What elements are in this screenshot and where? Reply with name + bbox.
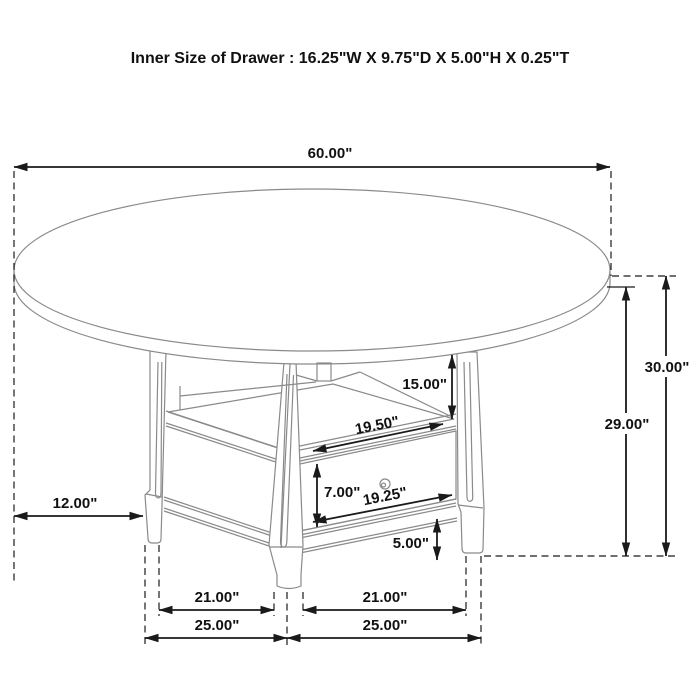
dim-apron-height-label: 5.00" — [393, 535, 429, 552]
dim-table-diameter: 60.00" — [14, 145, 610, 167]
dim-top-overhang-label: 12.00" — [53, 495, 98, 512]
drawing-title: Inner Size of Drawer : 16.25"W X 9.75"D … — [131, 50, 570, 67]
round-table-dimension-drawing: 60.00" 30.00" 29.00" 15.00" 19.50" 7.00" — [0, 0, 700, 700]
dimension-diagram: 60.00" 30.00" 29.00" 15.00" 19.50" 7.00" — [0, 0, 700, 700]
dim-leg-clear-left-label: 21.00" — [195, 589, 240, 606]
back-left-leg — [145, 350, 166, 543]
dim-underside-height: 29.00" — [600, 287, 654, 556]
dim-top-overhang: 12.00" — [14, 495, 143, 516]
dim-leg-center-right: 25.00" — [287, 617, 481, 638]
dim-compartment-height-label: 15.00" — [402, 376, 447, 393]
dim-leg-center-left-label: 25.00" — [195, 617, 240, 634]
dim-leg-center-right-label: 25.00" — [363, 617, 408, 634]
dim-leg-clear-right: 21.00" — [303, 589, 466, 610]
dim-leg-center-left: 25.00" — [145, 617, 287, 638]
dim-apron-height: 5.00" — [393, 519, 437, 560]
dim-underside-height-label: 29.00" — [605, 416, 650, 433]
back-leg — [317, 363, 331, 381]
dim-table-diameter-label: 60.00" — [308, 145, 353, 162]
table-top — [14, 189, 610, 364]
dim-leg-clear-left: 21.00" — [159, 589, 274, 610]
dim-drawer-height-label: 7.00" — [324, 484, 360, 501]
dim-leg-clear-right-label: 21.00" — [363, 589, 408, 606]
left-apron-band — [164, 497, 272, 547]
table-top-surface — [14, 189, 610, 351]
right-leg — [457, 352, 484, 553]
dim-overall-height-label: 30.00" — [645, 359, 690, 376]
